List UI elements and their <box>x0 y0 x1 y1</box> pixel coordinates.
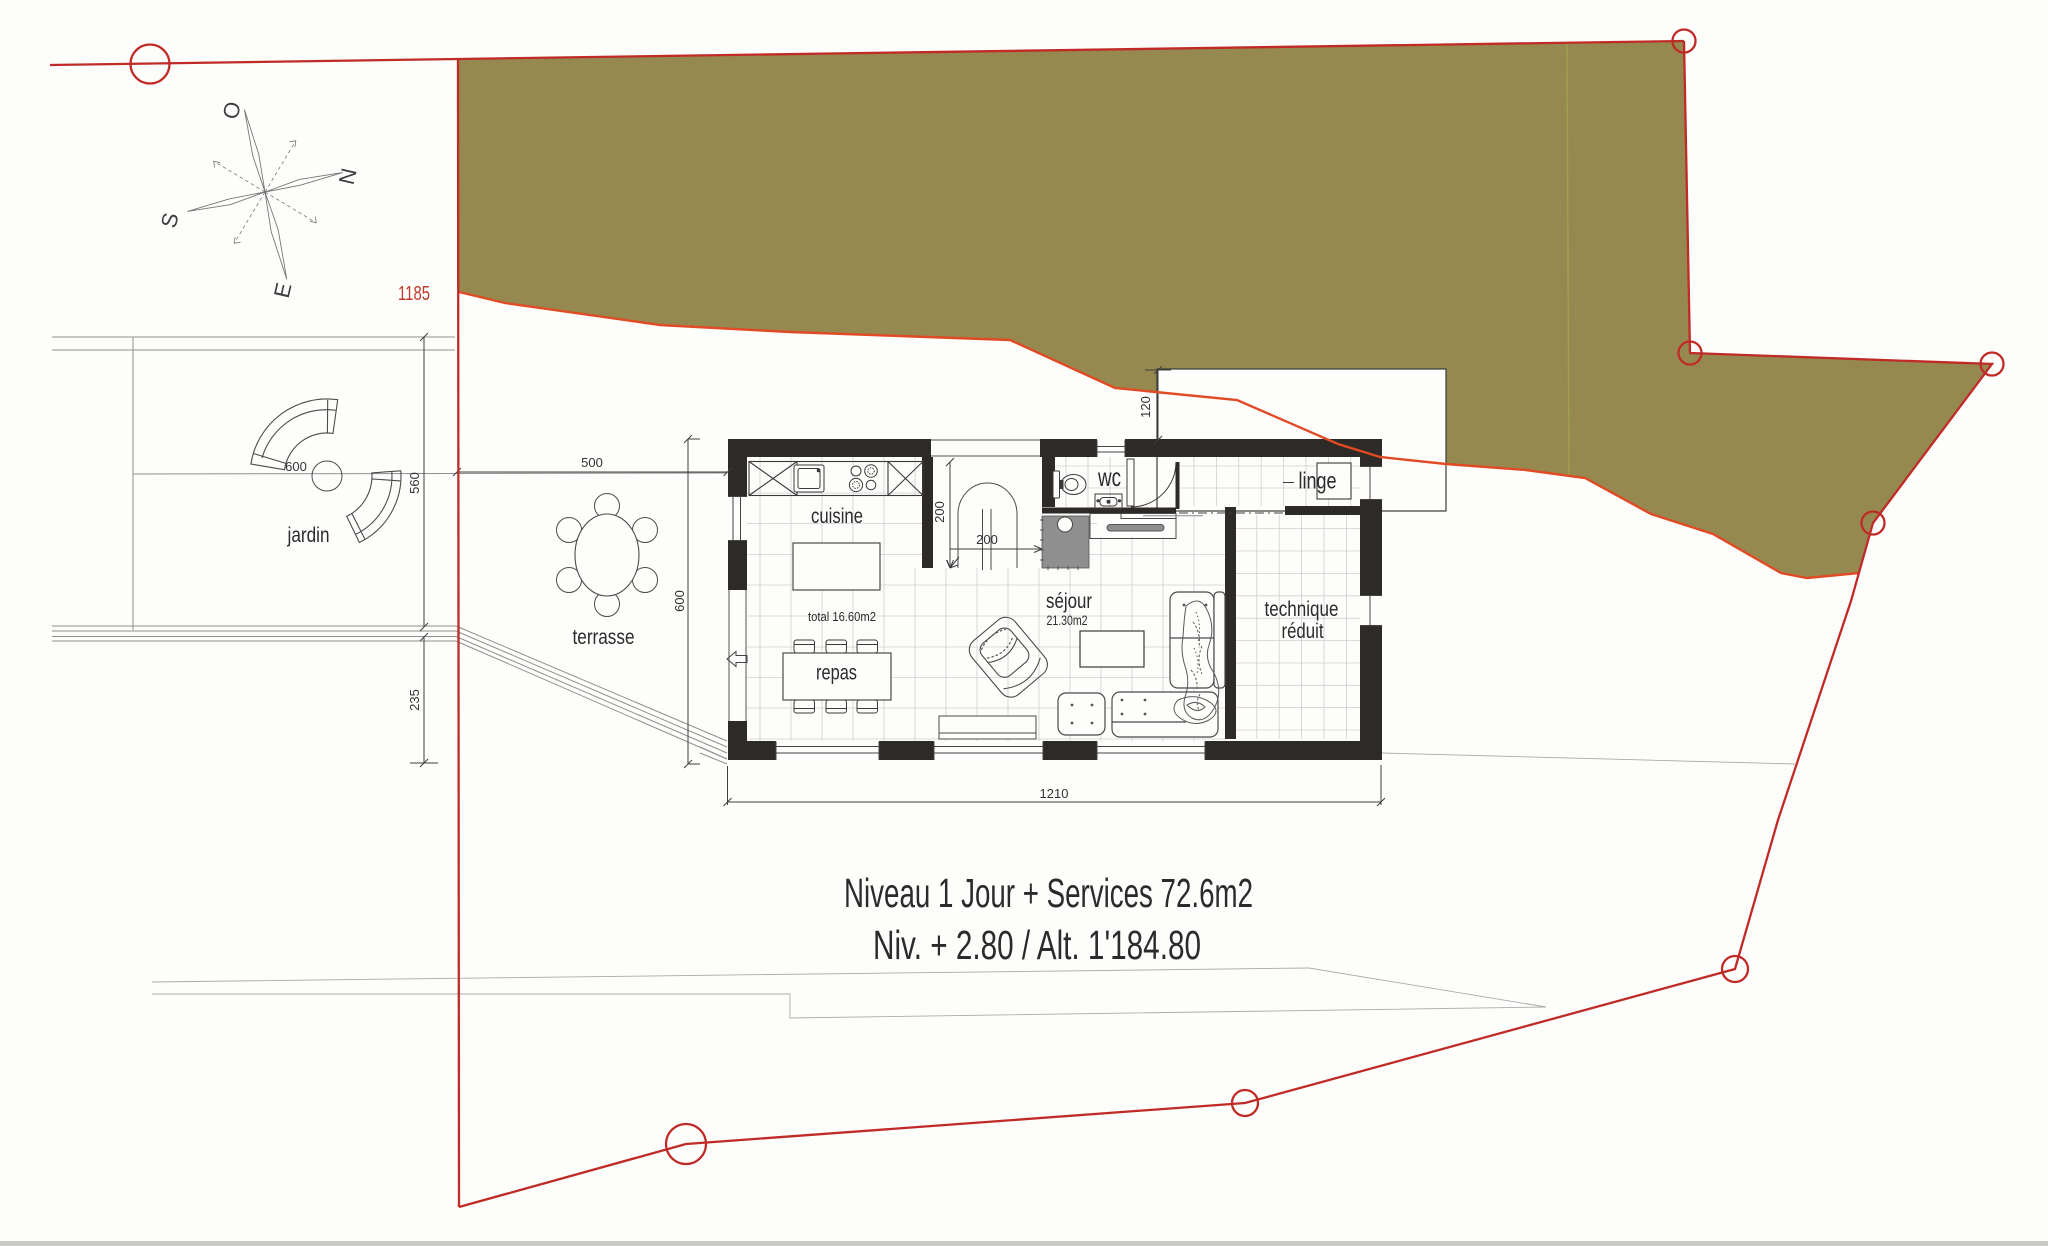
svg-text:linge: linge <box>1299 468 1337 494</box>
svg-text:120: 120 <box>1138 396 1153 418</box>
svg-text:200: 200 <box>932 501 947 523</box>
svg-text:600: 600 <box>285 459 307 474</box>
svg-text:200: 200 <box>976 532 998 547</box>
svg-text:Niveau 1 Jour + Services 72.6m: Niveau 1 Jour + Services 72.6m2 <box>844 870 1253 916</box>
svg-text:560: 560 <box>407 472 422 494</box>
svg-text:1210: 1210 <box>1040 786 1069 801</box>
svg-text:cuisine: cuisine <box>811 505 863 528</box>
svg-text:500: 500 <box>581 455 603 470</box>
svg-text:600: 600 <box>672 590 687 612</box>
svg-text:terrasse: terrasse <box>573 626 635 649</box>
svg-text:total 16.60m2: total 16.60m2 <box>808 610 876 624</box>
svg-text:séjour: séjour <box>1046 590 1092 613</box>
svg-text:technique: technique <box>1265 598 1339 621</box>
svg-text:235: 235 <box>407 689 422 711</box>
svg-text:Niv. + 2.80 / Alt. 1'184.80: Niv. + 2.80 / Alt. 1'184.80 <box>873 922 1201 968</box>
svg-text:21.30m2: 21.30m2 <box>1047 613 1088 628</box>
svg-text:wc: wc <box>1097 462 1121 492</box>
svg-text:repas: repas <box>816 662 857 685</box>
svg-text:1185: 1185 <box>398 283 430 305</box>
svg-text:jardin: jardin <box>287 524 330 547</box>
svg-text:réduit: réduit <box>1282 620 1324 643</box>
